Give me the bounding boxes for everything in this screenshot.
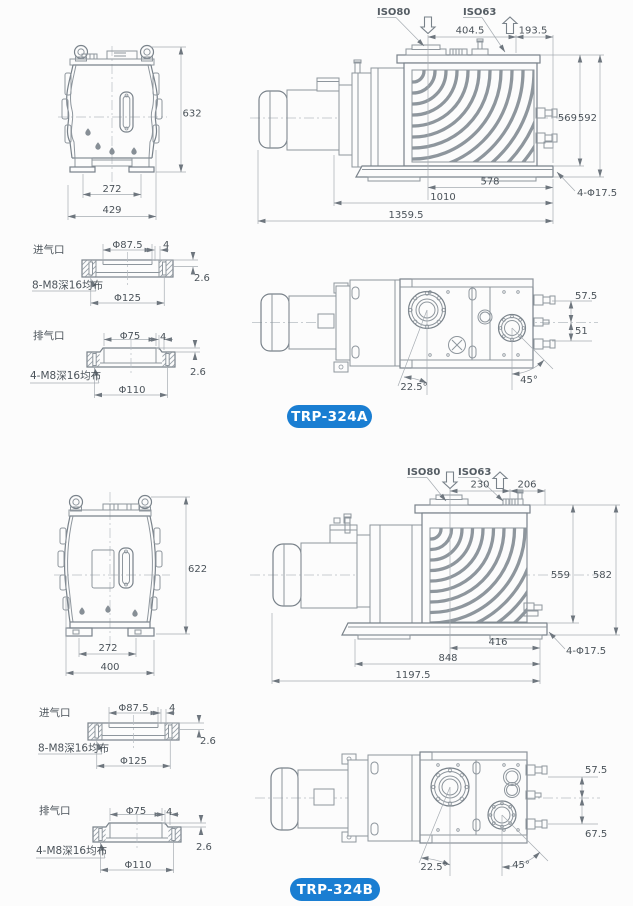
top-view-a: 57.5 51 22.5° 45° [252, 279, 598, 395]
inlet-face-height: 2.6 [200, 736, 216, 747]
dim-a-inlet-to-exhaust: 404.5 [456, 26, 485, 37]
inlet-bolt-circle: Φ125 [114, 293, 141, 304]
dim-b-inlet-to-exhaust: 230 [470, 480, 489, 491]
outlet-flange-a: 排气口 Φ75 4 2.6 4-M8深16均布 Φ110 [30, 329, 206, 398]
motor-fins [301, 543, 357, 608]
dim-b-inlet-to-base-end: 416 [488, 637, 507, 648]
dim-a-offset-lower: 51 [575, 326, 588, 337]
dim-a-front-height: 632 [183, 109, 202, 120]
motor-fins [287, 90, 339, 150]
dim-b-inlet-angle: 22.5° [420, 862, 447, 873]
inlet-flange-title: 进气口 [33, 243, 65, 256]
model-badge-trp-324a: TRP-324A [287, 405, 372, 428]
outlet-flange-title: 排气口 [39, 804, 71, 817]
sight-glass-icon [119, 548, 133, 588]
dim-b-front-height: 622 [188, 564, 207, 575]
iso80-label-a: ISO80 [377, 7, 410, 18]
oil-fill-knob-icon [503, 499, 523, 505]
inlet-bore-dia: Φ87.5 [118, 703, 148, 714]
outlet-bore-dia: Φ75 [120, 331, 141, 342]
outlet-flange-b: 排气口 Φ75 4 2.6 4-M8深16均布 Φ110 [36, 804, 212, 873]
trp-324a-drawings: 632 272 429 ISO80 ISO63 [0, 0, 633, 448]
dim-a-overall-length: 1359.5 [389, 210, 424, 221]
dim-a-mounting-holes: 4-Φ17.5 [577, 188, 617, 199]
outlet-bolt-circle: Φ110 [125, 860, 152, 871]
dim-a-front-foot-spacing: 272 [102, 184, 121, 195]
dim-a-exhaust-to-edge: 193.5 [519, 26, 548, 37]
dim-a-inlet-to-base-end: 578 [480, 177, 499, 188]
inlet-flange-a: 进气口 Φ87.5 4 2.6 8-M8深16均布 Φ125 [32, 240, 210, 306]
top-view-b: 57.5 67.5 22.5° 45° [255, 752, 607, 876]
dim-b-height-base-top: 559 [551, 570, 570, 581]
model-badge-trp-324b: TRP-324B [290, 878, 380, 901]
front-view-b: 622 272 400 [54, 492, 207, 676]
dim-a-exhaust-angle: 45° [520, 375, 538, 386]
dim-a-offset-upper: 57.5 [575, 291, 597, 302]
sight-glass-icon [120, 92, 133, 132]
inlet-flange-b: 进气口 Φ87.5 4 2.6 8-M8深16均布 Φ125 [38, 703, 216, 769]
inlet-bolt-circle: Φ125 [120, 756, 147, 767]
dim-b-front-foot-spacing: 272 [98, 643, 117, 654]
oil-fill-knob-icon [450, 49, 467, 55]
dim-b-front-width: 400 [100, 662, 119, 673]
inlet-bolt-note: 8-M8深16均布 [38, 743, 109, 755]
dim-b-overall-length: 1197.5 [396, 670, 431, 681]
dim-a-overall-height: 592 [578, 113, 597, 124]
dim-b-mounting-holes: 4-Φ17.5 [566, 646, 606, 657]
outlet-bolt-note: 4-M8深16均布 [36, 845, 107, 857]
inlet-lip-width: 4 [163, 240, 169, 251]
inlet-face-height: 2.6 [194, 273, 210, 284]
side-view-b: ISO80 ISO63 230 206 559 582 416 848 1197… [250, 448, 620, 684]
inlet-bore-dia: Φ87.5 [112, 240, 142, 251]
inlet-flange-title: 进气口 [39, 706, 71, 719]
inlet-lip-width: 4 [169, 703, 175, 714]
dim-a-height-base-top: 569 [558, 113, 577, 124]
dim-b-overall-height: 582 [593, 570, 612, 581]
dim-b-base-length: 848 [438, 653, 457, 664]
outlet-lip-width: 4 [160, 332, 166, 343]
outlet-lip-width: 4 [166, 807, 172, 818]
outlet-bore-dia: Φ75 [126, 806, 147, 817]
inlet-bolt-note: 8-M8深16均布 [32, 280, 103, 292]
outlet-flange-title: 排气口 [33, 329, 65, 342]
iso63-label-a: ISO63 [463, 7, 496, 18]
side-view-a: ISO80 ISO63 404.5 193.5 569 592 578 1010… [250, 0, 617, 225]
dim-a-base-length: 1010 [430, 192, 455, 203]
outlet-face-height: 2.6 [190, 367, 206, 378]
outlet-bolt-circle: Φ110 [119, 385, 146, 396]
dim-a-inlet-angle: 22.5° [400, 382, 427, 393]
drawing-sheet: 632 272 429 ISO80 ISO63 [0, 0, 633, 906]
dim-b-exhaust-to-edge: 206 [517, 480, 536, 491]
dim-b-offset-upper: 57.5 [585, 765, 607, 776]
dim-a-front-width: 429 [102, 205, 121, 216]
outlet-bolt-note: 4-M8深16均布 [30, 370, 101, 382]
dim-b-offset-lower: 67.5 [585, 829, 607, 840]
iso63-label-b: ISO63 [458, 467, 491, 478]
iso80-label-b: ISO80 [407, 467, 440, 478]
front-view-a: 632 272 429 [58, 46, 202, 221]
outlet-face-height: 2.6 [196, 842, 212, 853]
trp-324b-drawings: 622 272 400 ISO80 ISO63 [0, 448, 633, 906]
dim-b-exhaust-angle: 45° [512, 860, 530, 871]
